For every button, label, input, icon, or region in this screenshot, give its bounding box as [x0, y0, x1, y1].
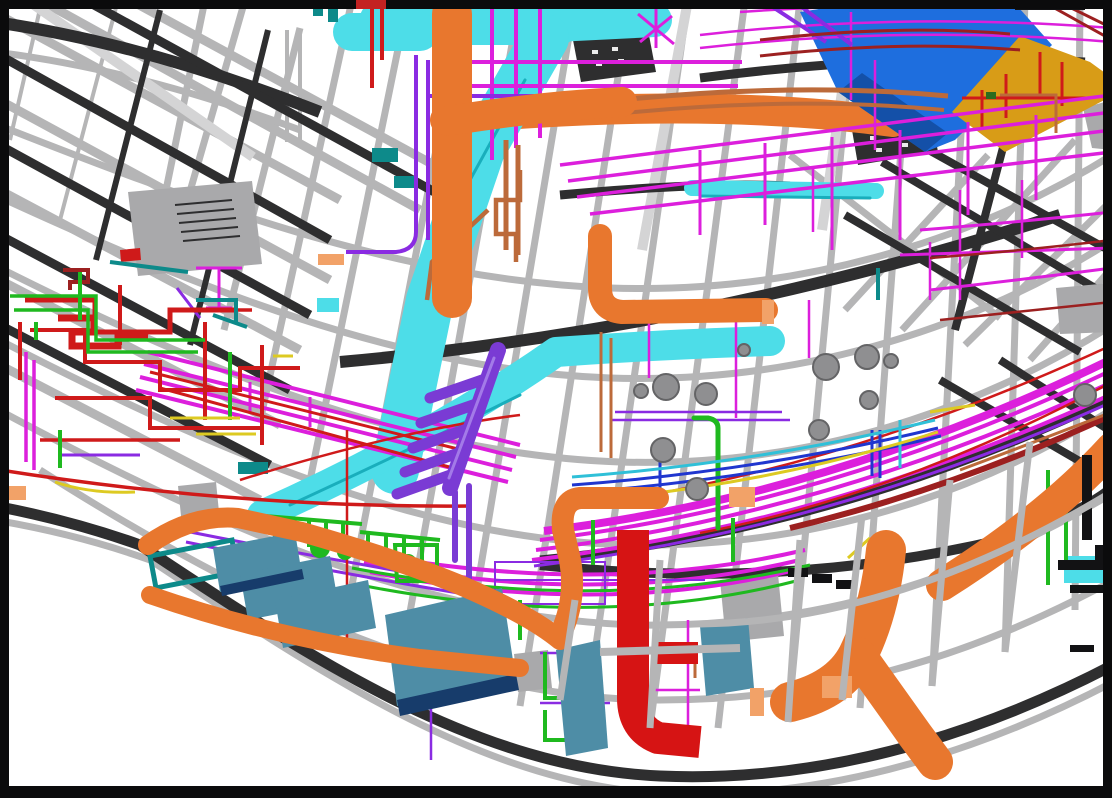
panel-6: [700, 618, 754, 696]
panel-red-stub: [120, 248, 141, 262]
frame-red-stub: [356, 0, 386, 9]
cyan-block-left: [317, 298, 339, 312]
bim-model-rendering: [0, 0, 1112, 798]
orange-top-patch: [448, 102, 622, 121]
cyan-plenum-right: [555, 20, 655, 25]
model-viewport[interactable]: [0, 0, 1112, 798]
hatched-ceiling-panel: [128, 181, 262, 276]
gold-slab-fitting: [986, 92, 996, 99]
